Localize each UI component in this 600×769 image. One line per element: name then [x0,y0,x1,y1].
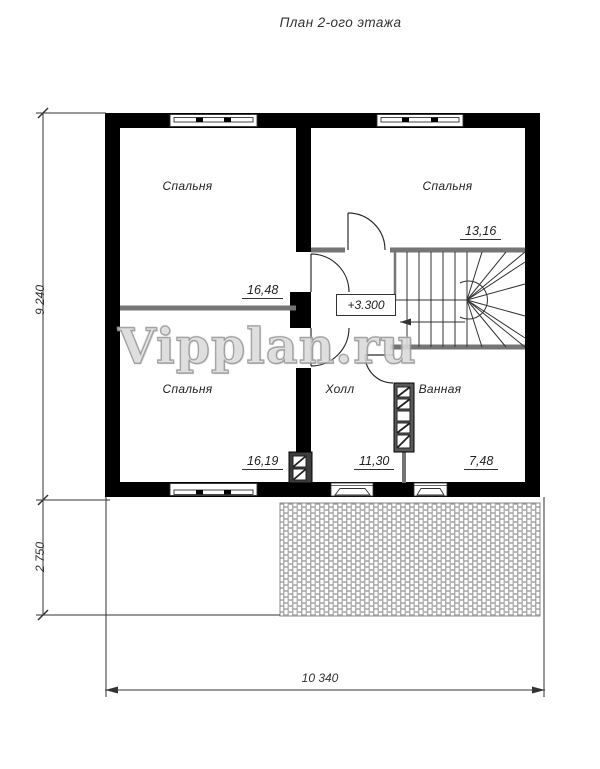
room-area-bedroom-top-left: 16,48 [242,283,283,299]
window-top-right [377,115,463,127]
room-label-bedroom-bottom-left: Спальня [140,382,235,396]
room-area-bedroom-top-right: 13,16 [460,224,501,240]
room-label-hall: Холл [306,382,374,396]
interior-walls [290,128,311,482]
dimension-left-lower: 2 750 [33,525,47,589]
drawing-title: План 2-ого этажа [238,15,443,30]
site-watermark: Vipplan.ru [118,317,417,375]
door-bedroom-top-left [311,254,349,292]
dimension-bottom-total: 10 340 [280,671,360,685]
vent-shaft-bedroom [289,452,312,483]
floor-plan-page: План 2-ого этажа Спальня Спальня Спальня… [0,0,600,769]
window-bottom-left [170,484,257,496]
room-area-bedroom-bottom-left: 16,19 [242,454,283,470]
opening-bottom-middle [331,483,373,496]
door-bedroom-top-right [348,213,385,250]
window-top-left [170,115,257,127]
room-area-bathroom: 7,48 [464,454,498,470]
opening-bottom-right [414,483,447,496]
room-label-bedroom-top-left: Спальня [140,179,235,193]
room-area-hall: 11,30 [354,454,394,470]
elevation-mark: +3.300 [336,294,396,316]
dimension-left-total: 9 240 [33,268,47,332]
room-label-bathroom: Ванная [406,382,474,396]
roof-hatch-area [280,503,540,616]
floor-plan-drawing [0,0,600,769]
room-label-bedroom-top-right: Спальня [400,179,495,193]
